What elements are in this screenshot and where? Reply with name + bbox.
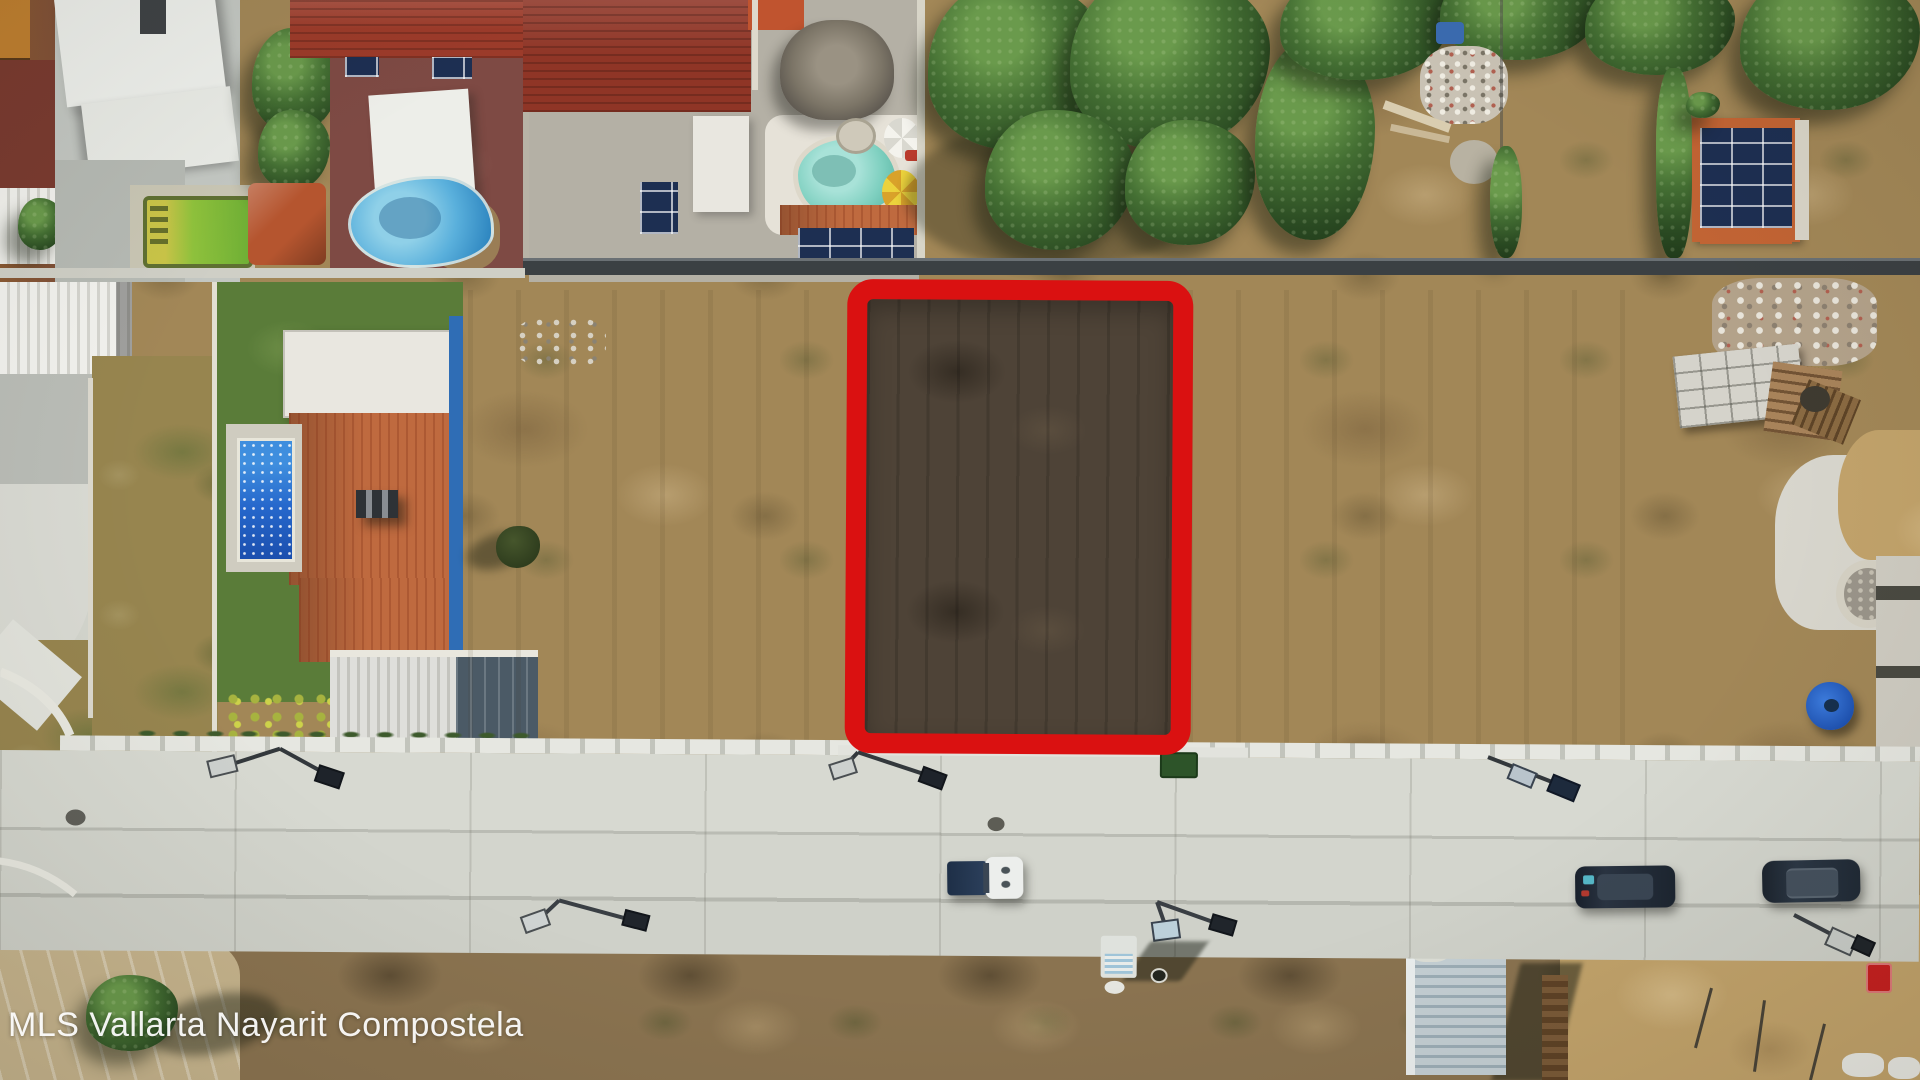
pickup-truck: [945, 855, 1026, 902]
red-tile-roof-top: [290, 0, 525, 58]
suv1-taillight: [1581, 890, 1589, 896]
yellow-building: [0, 0, 30, 62]
streetlamp-north-3: [1488, 757, 1580, 801]
utility-box: [1101, 936, 1137, 978]
truck-windshield: [983, 863, 989, 893]
street-band: [0, 748, 1920, 995]
highlighted-lot-boundary: [845, 279, 1194, 755]
solar-house-lower-roof: [1700, 232, 1792, 244]
utility-dot: [1105, 981, 1125, 994]
curb-arc-bottom-left: [0, 861, 75, 894]
lot-wall-e-inner: [752, 0, 758, 90]
palapa-thatch-roof: [780, 20, 894, 120]
hedge-right: [1656, 68, 1692, 258]
suv1-glass-glint: [1583, 875, 1594, 884]
bush-column: [1490, 146, 1522, 258]
streetlamp-south-2: [1152, 902, 1237, 941]
truck-sunroof-2: [1001, 881, 1010, 888]
curb-arc-top-left: [0, 672, 70, 735]
dark-bucket: [1800, 386, 1830, 412]
roof-solar-panel-a: [345, 57, 379, 77]
solar-house-path: [1795, 120, 1809, 240]
debris-pile: [1420, 46, 1508, 124]
suv2-roof: [1786, 868, 1839, 899]
sand-mound: [1838, 430, 1920, 560]
top-tree-row-3: [1585, 0, 1735, 75]
top-tree-row-4: [1740, 0, 1920, 110]
utility-box-vents: [1105, 954, 1133, 974]
raised-spa: [836, 118, 876, 154]
suv1-roof: [1597, 874, 1653, 901]
perimeter-wall-dark: [523, 258, 1920, 275]
dark-red-roof: [523, 0, 751, 112]
pool-water-swirl: [379, 197, 441, 239]
courtyard-tree-2: [258, 110, 330, 190]
green-pool-steps: [150, 206, 168, 250]
white-object-2: [1888, 1057, 1920, 1079]
big-tree-4: [1125, 120, 1255, 245]
dark-suv-1: [1575, 865, 1675, 908]
aerial-photo: MLS Vallarta Nayarit Compostela: [0, 0, 1920, 1080]
house-flat-roof: [283, 330, 453, 418]
blue-wall: [449, 316, 463, 662]
north-properties-row: [0, 0, 1920, 282]
dark-roof-corner: [140, 0, 166, 34]
truck-bed: [947, 861, 987, 895]
blue-tarp: [1436, 22, 1464, 44]
perimeter-wall-light: [0, 268, 525, 278]
gazebo-red-roof: [248, 183, 326, 265]
streetlamp-north-1: [207, 748, 344, 788]
chimney: [356, 490, 398, 518]
dark-suv-2: [1762, 859, 1861, 903]
streetlamp-south-3: [1794, 915, 1875, 956]
small-bucket: [1151, 968, 1168, 983]
roof-solar-panel-b: [432, 57, 472, 79]
lap-pool: [237, 438, 295, 562]
white-casita: [693, 116, 749, 212]
stone-pile: [514, 316, 606, 368]
white-object-1: [1842, 1053, 1884, 1077]
maroon-wall: [0, 60, 62, 190]
spa-water-swirl: [812, 155, 856, 187]
truck-cab: [985, 857, 1023, 899]
ground-solar-panel: [640, 182, 678, 234]
streetlamp-south-1: [521, 900, 650, 933]
solar-house-array: [1700, 128, 1792, 228]
solar-house-bush: [1686, 92, 1720, 118]
streetlamp-north-2: [829, 752, 946, 789]
truck-sunroof-1: [1001, 867, 1010, 874]
watermark: MLS Vallarta Nayarit Compostela: [8, 1006, 524, 1045]
